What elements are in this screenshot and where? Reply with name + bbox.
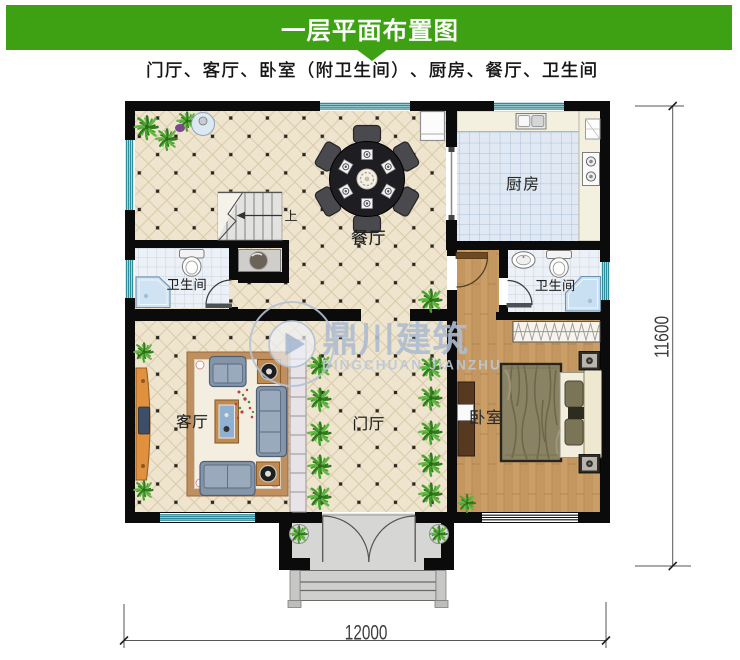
svg-text:12000: 12000 [345, 620, 388, 644]
svg-text:11600: 11600 [651, 316, 673, 358]
svg-text:DINGCHUAN JIANZHU: DINGCHUAN JIANZHU [322, 358, 502, 373]
